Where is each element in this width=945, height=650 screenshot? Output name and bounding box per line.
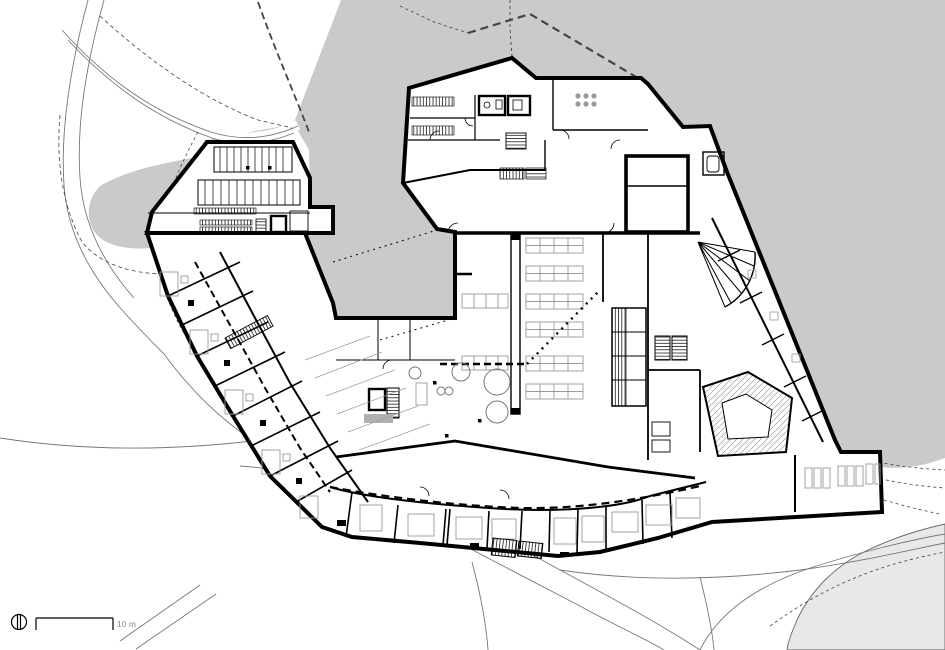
- road-lakeside-2: [68, 40, 294, 143]
- north-indicator-icon: [12, 615, 27, 630]
- lakeside-road-casing: [60, 28, 298, 138]
- hall-core-wall: [511, 234, 520, 414]
- floor-plan-canvas: 10 m: [0, 0, 945, 650]
- road-west-inner: [79, 0, 134, 298]
- scale-bar-line: [36, 618, 113, 630]
- boundary-top-left: [100, 16, 292, 128]
- path-branch-2: [700, 577, 714, 650]
- path-branch-1: [472, 562, 488, 650]
- terrain-area: [787, 524, 945, 650]
- building-nw-wing: [147, 142, 333, 233]
- scale-bar: 10 m: [12, 615, 136, 631]
- path-southwest-main: [0, 438, 260, 448]
- site-plan-svg: 10 m: [0, 0, 945, 650]
- lobby-ramp: [364, 414, 393, 423]
- scale-label: 10 m: [117, 619, 136, 629]
